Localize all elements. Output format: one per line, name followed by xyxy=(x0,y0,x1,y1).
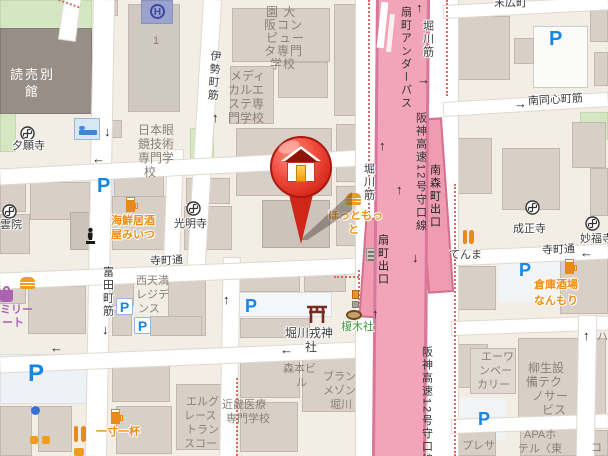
label-horikawa-ebisu-shrine[interactable]: 社 xyxy=(305,341,317,354)
label-aone-bakery: ンベー xyxy=(479,366,512,378)
oneway-arrow: → xyxy=(417,72,430,87)
label-enokisha[interactable]: 榎木社 xyxy=(341,322,374,334)
label-street-isemachisuji: 伊勢町筋 xyxy=(205,50,220,103)
label-kinki-medical-college: 専門学校 xyxy=(226,414,270,426)
label-komyoji-temple: 光明寺 xyxy=(174,219,207,231)
oneway-arrow: ↑ xyxy=(416,0,423,15)
label-minamimorimachi-exit: 南森町出口 xyxy=(428,164,440,229)
label-ogimachi-exit: 扇町出口 xyxy=(376,234,388,286)
beer-icon[interactable] xyxy=(111,409,123,425)
label-apa-hotel: テル〈東 xyxy=(518,444,562,456)
parking-icon[interactable]: P xyxy=(97,175,110,198)
label-osaka-computer-college: 阪コン xyxy=(264,19,303,32)
beer-icon[interactable] xyxy=(126,197,138,213)
temple-icon[interactable] xyxy=(2,204,17,219)
label-kaisen-izakaya-miitsu[interactable]: 海鮮居酒 xyxy=(111,216,155,228)
label-yagyu-setsubi: 備テク xyxy=(526,376,562,389)
label-morimoto-building: ル xyxy=(296,378,307,390)
label-apa-hotel: APAホ xyxy=(524,430,556,442)
temple-icon[interactable] xyxy=(186,201,201,216)
label-yomiuri-annex: 館 xyxy=(25,85,40,99)
label-soko-sakaba-nammori[interactable]: 倉庫酒場 xyxy=(534,280,578,292)
building xyxy=(590,168,608,216)
oneway-arrow: ↓ xyxy=(412,250,419,265)
restaurant-icon[interactable] xyxy=(461,230,477,246)
parking-icon[interactable]: P xyxy=(519,260,531,281)
label-medical-esthe-college: 門学校 xyxy=(228,112,264,125)
building xyxy=(456,16,510,80)
label-building-number: 1 xyxy=(153,36,159,48)
label-tenma[interactable]: てんま xyxy=(449,250,482,262)
oneway-arrow: ↓ xyxy=(104,124,111,139)
label-osaka-computer-college: ピュー xyxy=(266,32,305,45)
oneway-arrow: ↑ xyxy=(379,138,386,153)
label-nishitenma-residence: 西天満 xyxy=(136,276,169,288)
steps-icon xyxy=(366,248,375,261)
building xyxy=(150,316,202,336)
label-edge-fragment: コ xyxy=(591,443,602,455)
oneway-arrow: ↑ xyxy=(396,182,403,197)
helipad-icon[interactable]: H xyxy=(141,0,173,24)
label-yagyu-setsubi: 柳生設 xyxy=(528,362,564,375)
oneway-arrow: ↓ xyxy=(102,322,109,337)
label-elgrace: エルグ xyxy=(186,397,219,409)
label-yomiuri-annex: 読売別 xyxy=(10,68,55,82)
label-morimoto-building: 森本ビ xyxy=(283,364,316,376)
temple-icon[interactable] xyxy=(585,216,600,231)
parking-icon[interactable]: P xyxy=(28,360,44,388)
poi-dot xyxy=(31,406,40,415)
oneway-arrow: ↑ xyxy=(223,292,230,307)
map-canvas[interactable]: H xyxy=(0,0,608,456)
label-kaisen-izakaya-miitsu[interactable]: 屋みいつ xyxy=(111,230,155,242)
label-myofukuji-temple: 妙福寺 xyxy=(580,234,608,246)
label-suehirocho: 末広町 xyxy=(494,0,527,10)
parking-icon[interactable]: P xyxy=(478,409,490,430)
building xyxy=(572,122,606,168)
hotel-icon[interactable] xyxy=(74,118,100,140)
parking-icon[interactable]: P xyxy=(245,296,257,317)
label-edge-fragment: ハ xyxy=(597,332,608,344)
building xyxy=(0,406,32,456)
oneway-arrow: ← xyxy=(92,151,105,166)
label-street-teramachi: 寺町通 xyxy=(150,255,183,268)
label-familymart[interactable]: ミリー xyxy=(0,305,33,317)
restaurant-icon[interactable] xyxy=(72,426,90,444)
temple-icon[interactable] xyxy=(525,200,540,215)
label-horikawa-ebisu-shrine[interactable]: 堀川戎神 xyxy=(285,327,333,340)
oneway-arrow: ← xyxy=(50,340,63,355)
oneway-arrow: ↑ xyxy=(372,306,379,321)
label-street-horikawasuji: 堀川筋 xyxy=(362,163,374,202)
label-presa: プレサ xyxy=(462,441,495,453)
boundary-line xyxy=(454,184,456,456)
label-blanc-maison-horikawa: 堀川 xyxy=(330,400,352,412)
oneway-arrow: ↑ xyxy=(583,328,590,343)
label-osaka-computer-college: 学校 xyxy=(270,58,296,71)
label-street-teramachi: 寺町通 xyxy=(542,244,575,257)
parking-icon[interactable]: P xyxy=(116,298,133,315)
temple-icon[interactable] xyxy=(20,126,35,141)
label-hanshin-expressway: 阪神高速12号守口線 xyxy=(414,112,426,232)
oneway-arrow: ↑ xyxy=(212,110,219,125)
poi-icon xyxy=(42,436,50,444)
oneway-arrow: ← xyxy=(280,342,293,357)
parking-icon[interactable]: P xyxy=(134,317,151,334)
label-soko-sakaba-nammori[interactable]: なんもり xyxy=(534,296,578,308)
label-kinki-medical-college: 近畿医療 xyxy=(222,400,266,412)
label-hanshin-expressway: 阪神高速12号守口線 xyxy=(420,346,432,456)
label-seishoji-temple: 成正寺 xyxy=(513,224,546,236)
label-nishitenma-residence: レジデ xyxy=(136,290,169,302)
label-elgrace: レース xyxy=(184,411,216,423)
label-medical-esthe-college: カルエ xyxy=(228,84,264,97)
burger-icon[interactable] xyxy=(20,277,35,289)
label-blanc-maison-horikawa: ブラン xyxy=(323,372,356,384)
label-aone-bakery: カリー xyxy=(477,380,510,392)
label-medical-esthe-college: メディ xyxy=(230,70,265,83)
oneway-arrow: ← xyxy=(580,245,593,260)
label-medical-esthe-college: ステ専 xyxy=(228,98,264,111)
building xyxy=(594,52,608,86)
label-yuganji-temple: 夕願寺 xyxy=(12,141,45,153)
label-hottomotto[interactable]: と xyxy=(348,225,359,237)
label-nihon-gankyo-college: 校 xyxy=(144,166,156,179)
shopping-bag-icon[interactable] xyxy=(0,286,13,302)
label-elgrace: スコー xyxy=(184,439,217,451)
label-ogimachi-underpass: 扇町アンダーパス xyxy=(399,6,411,110)
label-familymart[interactable]: ート xyxy=(2,318,24,330)
building xyxy=(38,406,72,452)
poi-icon xyxy=(74,448,84,456)
building xyxy=(514,38,534,64)
label-street-horikawasuji: 堀川筋 xyxy=(421,20,433,59)
label-nishitenma-residence: ンス xyxy=(138,304,160,316)
boundary-line xyxy=(446,0,448,96)
label-elgrace: トラン xyxy=(186,425,219,437)
label-street-tomita: 富田町筋 xyxy=(101,266,113,318)
label-issun-ippai[interactable]: 一寸一杯 xyxy=(96,427,140,439)
lantern-icon xyxy=(352,290,359,299)
label-unin-temple: 雲院 xyxy=(0,220,22,232)
map-marker-home-pin[interactable] xyxy=(268,136,334,246)
label-yagyu-setsubi: ノサー xyxy=(532,390,568,403)
sign-icon xyxy=(346,310,362,320)
building xyxy=(28,286,86,334)
label-blanc-maison-horikawa: メゾン xyxy=(323,386,356,398)
parking-icon[interactable]: P xyxy=(549,28,562,51)
label-nihon-gankyo-college: 鏡技術 xyxy=(138,138,174,151)
building xyxy=(456,266,496,310)
label-yagyu-setsubi: ビス xyxy=(542,404,566,417)
poi-icon xyxy=(30,436,38,444)
label-nihon-gankyo-college: 専門学 xyxy=(138,152,174,165)
building xyxy=(590,8,608,42)
building xyxy=(456,138,492,194)
label-osaka-computer-college: 園 大 xyxy=(266,6,296,19)
small-poi-icon xyxy=(352,301,359,308)
label-nihon-gankyo-college: 日本眼 xyxy=(138,124,174,137)
label-osaka-computer-college: タ専門 xyxy=(264,45,303,58)
oneway-arrow: → xyxy=(514,96,527,111)
beer-icon[interactable] xyxy=(565,259,577,275)
label-aone-bakery: エーワ xyxy=(481,352,514,364)
